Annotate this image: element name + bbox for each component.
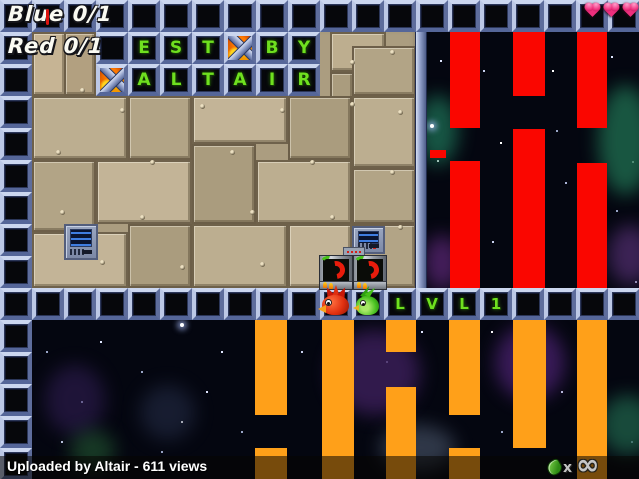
fire-x-tile-icon (96, 64, 128, 96)
frame-tile (0, 288, 32, 320)
orange-bar (449, 320, 480, 415)
frame-tile (160, 288, 192, 320)
sign-letter-tile: B (256, 32, 288, 64)
sign-letter: E (138, 38, 150, 58)
wall-plate (352, 168, 416, 224)
frame-tile (128, 288, 160, 320)
frame-tile (384, 0, 416, 32)
caption-text: Uploaded by Altair - 611 views (7, 458, 207, 474)
sign-letter: 1 (491, 295, 501, 313)
terminal-screen (70, 229, 92, 247)
red-bar (513, 32, 545, 96)
frame-tile (0, 416, 32, 448)
frame-tile (512, 288, 544, 320)
sign-letter: T (202, 70, 214, 90)
frame-tile (0, 96, 32, 128)
blue-team-score: Blue 0/1 (7, 2, 113, 26)
nebula (608, 225, 639, 285)
rivet (200, 104, 205, 109)
sign-letter: A (233, 70, 246, 90)
rivet (140, 215, 145, 220)
frame-tile (256, 0, 288, 32)
wall-plate (256, 160, 352, 224)
frame-tile (0, 192, 32, 224)
wall-plate (192, 96, 288, 144)
bright-star (430, 124, 434, 128)
sign-letter: L (395, 295, 405, 313)
game-screen: E S T B Y A L T A I R L V L 1 (0, 0, 639, 479)
rivet (230, 150, 235, 155)
frame-tile (0, 64, 32, 96)
paint-drip-decoration (46, 9, 49, 25)
rivet (310, 160, 315, 165)
frame-tile (512, 0, 544, 32)
sign-letter-tile: L (160, 64, 192, 96)
mid-tile-row (0, 288, 639, 320)
red-bar (450, 161, 480, 288)
frame-tile (416, 0, 448, 32)
sign-letter-tile: E (128, 32, 160, 64)
red-bar (450, 32, 480, 128)
ammo-count: ∞ (576, 448, 599, 479)
frame-tile (608, 288, 639, 320)
lvl-letter: 1 (480, 288, 512, 320)
sign-letter-tile: A (224, 64, 256, 96)
lvl-letter: L (448, 288, 480, 320)
frame-tile (480, 0, 512, 32)
rivet (260, 262, 265, 267)
red-bar (513, 129, 545, 288)
rivet (330, 215, 335, 220)
left-tile-column (0, 32, 32, 479)
rivet (398, 225, 403, 230)
frame-tile (320, 0, 352, 32)
red-team-score: Red 0/1 (7, 34, 104, 58)
rivet (60, 210, 65, 215)
rivet (80, 88, 85, 93)
rivet (250, 210, 255, 215)
sign-letter: A (137, 70, 150, 90)
frame-tile (0, 128, 32, 160)
rivet (390, 50, 395, 55)
wall-pillar (416, 32, 426, 288)
wall-plate (352, 96, 416, 168)
sign-letter-tile: R (288, 64, 320, 96)
rivet (120, 108, 125, 113)
green-bird-sprite (355, 292, 381, 316)
frame-tile (0, 320, 32, 352)
rivet (56, 150, 61, 155)
sign-letter: I (269, 70, 275, 90)
rivet (180, 265, 185, 270)
rivet (100, 260, 105, 265)
frame-tile (0, 160, 32, 192)
sign-letter: Y (298, 38, 310, 58)
frame-tile (256, 288, 288, 320)
wall-plate (352, 46, 416, 96)
rivet (150, 160, 155, 165)
lvl-letter: L (384, 288, 416, 320)
wall-plate (192, 144, 256, 224)
frame-tile (64, 288, 96, 320)
fire-x-tile-icon (224, 32, 256, 64)
wall-plate (32, 96, 128, 160)
frame-tile (448, 0, 480, 32)
sign-letter-tile: T (192, 32, 224, 64)
wall-plate (128, 224, 192, 288)
frame-tile (224, 0, 256, 32)
frame-tile (0, 256, 32, 288)
frame-tile (224, 288, 256, 320)
rivet (350, 60, 355, 65)
sign-letter: L (459, 295, 469, 313)
frame-tile (0, 224, 32, 256)
sign-letter: B (266, 38, 279, 58)
red-bar (577, 32, 607, 128)
bright-star (180, 323, 184, 327)
sign-letter: T (202, 38, 214, 58)
frame-tile (160, 0, 192, 32)
base-machine-icon (353, 255, 387, 290)
sign-letter: V (426, 295, 438, 313)
red-bar (577, 163, 607, 288)
orange-bar (513, 320, 546, 448)
sign-letter-tile: S (160, 32, 192, 64)
ammo-multiplier: x (563, 460, 572, 476)
sign-letter-tile: I (256, 64, 288, 96)
wall-plate (128, 96, 192, 160)
wall-plate (288, 96, 352, 160)
frame-tile (96, 288, 128, 320)
sign-letter-tile: Y (288, 32, 320, 64)
wall-plate (32, 160, 96, 232)
sign-letter-tile: T (192, 64, 224, 96)
orange-bar (255, 320, 287, 415)
rivet (280, 108, 285, 113)
wall-plate (96, 160, 192, 224)
sign-letter: R (297, 70, 310, 90)
frame-tile (288, 288, 320, 320)
nebula (45, 365, 105, 435)
wall-plate (192, 224, 288, 288)
sign-letter-tile: A (128, 64, 160, 96)
frame-tile (128, 0, 160, 32)
rivet (390, 170, 395, 175)
frame-tile (192, 0, 224, 32)
terminal-slot (82, 250, 92, 254)
frame-tile (0, 384, 32, 416)
wall-terminal-icon (64, 224, 98, 260)
frame-tile (576, 288, 608, 320)
rivet (350, 102, 355, 107)
red-bird-sprite (321, 290, 351, 316)
frame-tile (544, 0, 576, 32)
frame-tile (544, 288, 576, 320)
rivet (398, 110, 403, 115)
nebula (140, 385, 195, 440)
orange-bar (386, 320, 416, 352)
red-bar-notch (430, 150, 446, 158)
frame-tile (288, 0, 320, 32)
frame-tile (32, 288, 64, 320)
frame-tile (352, 0, 384, 32)
terminal-slot (369, 244, 379, 248)
lvl-letter: V (416, 288, 448, 320)
sign-letter: L (171, 70, 182, 90)
frame-tile (192, 288, 224, 320)
sign-letter: S (170, 38, 182, 58)
frame-tile (0, 352, 32, 384)
